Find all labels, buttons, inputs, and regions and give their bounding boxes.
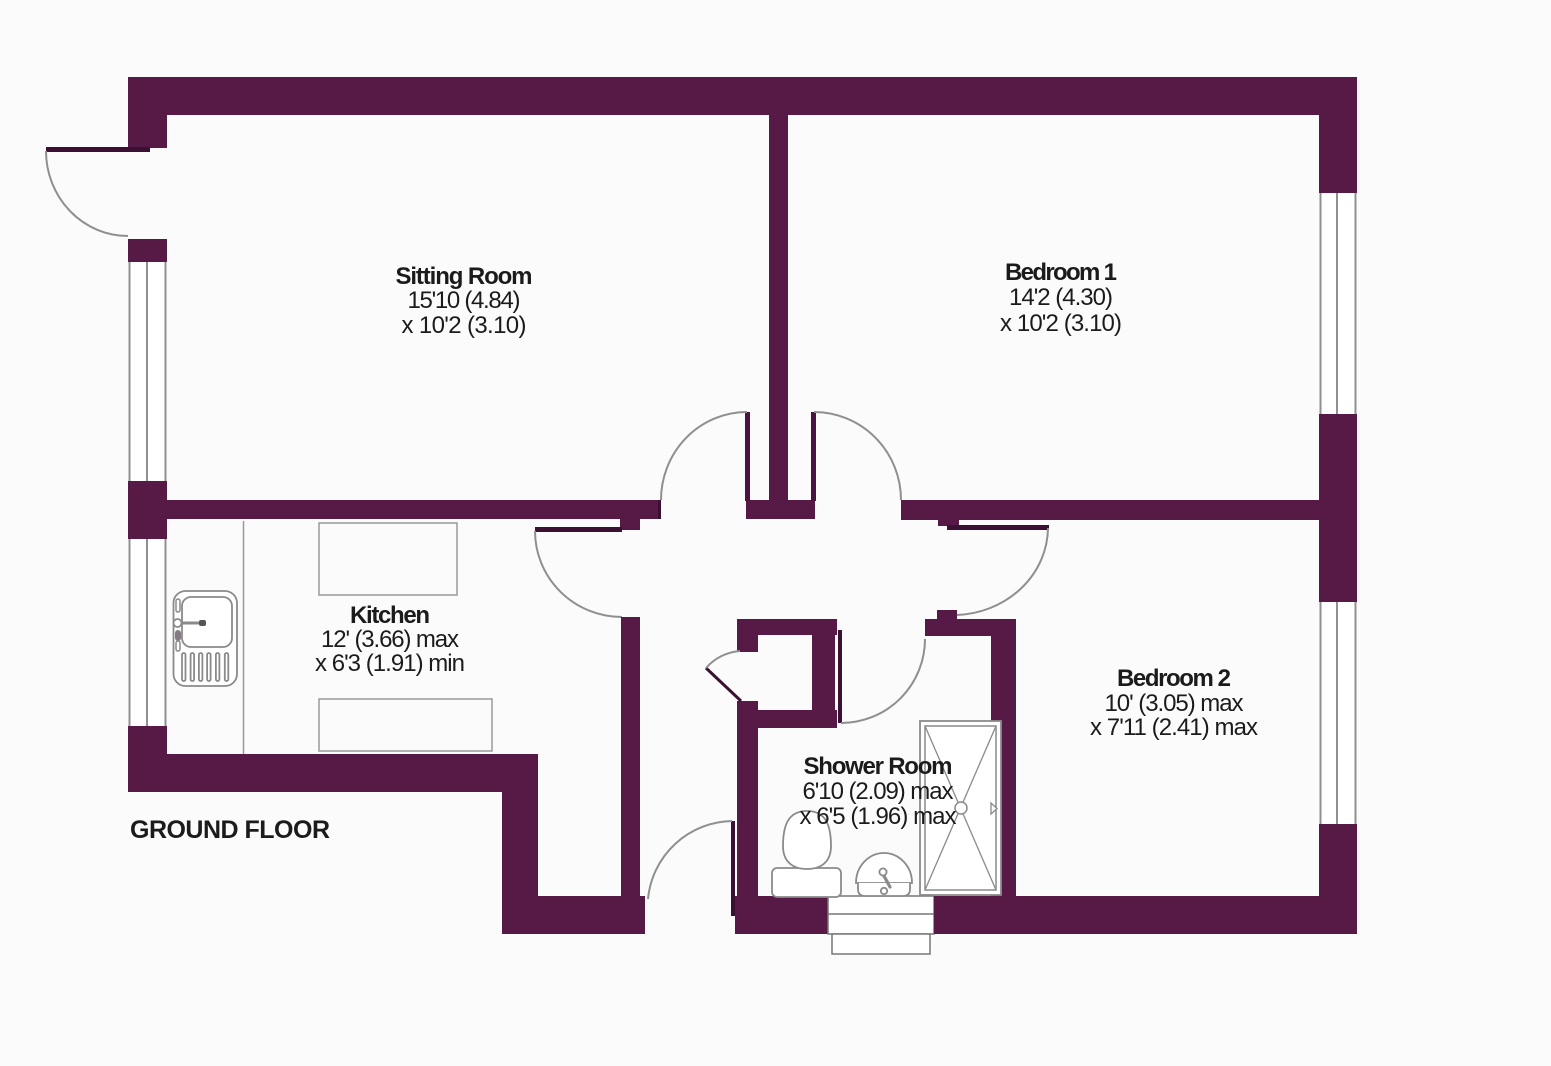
svg-text:Shower Room: Shower Room <box>804 753 953 780</box>
svg-text:10' (3.05) max: 10' (3.05) max <box>1105 690 1244 717</box>
svg-text:Bedroom 1: Bedroom 1 <box>1005 259 1117 286</box>
svg-text:Kitchen: Kitchen <box>350 602 430 629</box>
svg-text:x 6'3 (1.91) min: x 6'3 (1.91) min <box>315 650 465 677</box>
svg-text:15'10 (4.84): 15'10 (4.84) <box>408 287 521 314</box>
svg-text:Sitting Room: Sitting Room <box>396 263 533 290</box>
svg-text:GROUND FLOOR: GROUND FLOOR <box>130 816 330 844</box>
svg-text:14'2 (4.30): 14'2 (4.30) <box>1009 284 1113 311</box>
svg-text:x 10'2 (3.10): x 10'2 (3.10) <box>402 312 527 339</box>
svg-text:Bedroom 2: Bedroom 2 <box>1117 665 1231 692</box>
svg-text:x 7'11 (2.41) max: x 7'11 (2.41) max <box>1090 714 1258 741</box>
svg-text:6'10 (2.09) max: 6'10 (2.09) max <box>803 778 954 805</box>
svg-text:x 6'5 (1.96) max: x 6'5 (1.96) max <box>800 803 957 830</box>
svg-text:x 10'2 (3.10): x 10'2 (3.10) <box>1000 310 1122 337</box>
svg-text:12' (3.66) max: 12' (3.66) max <box>321 626 459 653</box>
